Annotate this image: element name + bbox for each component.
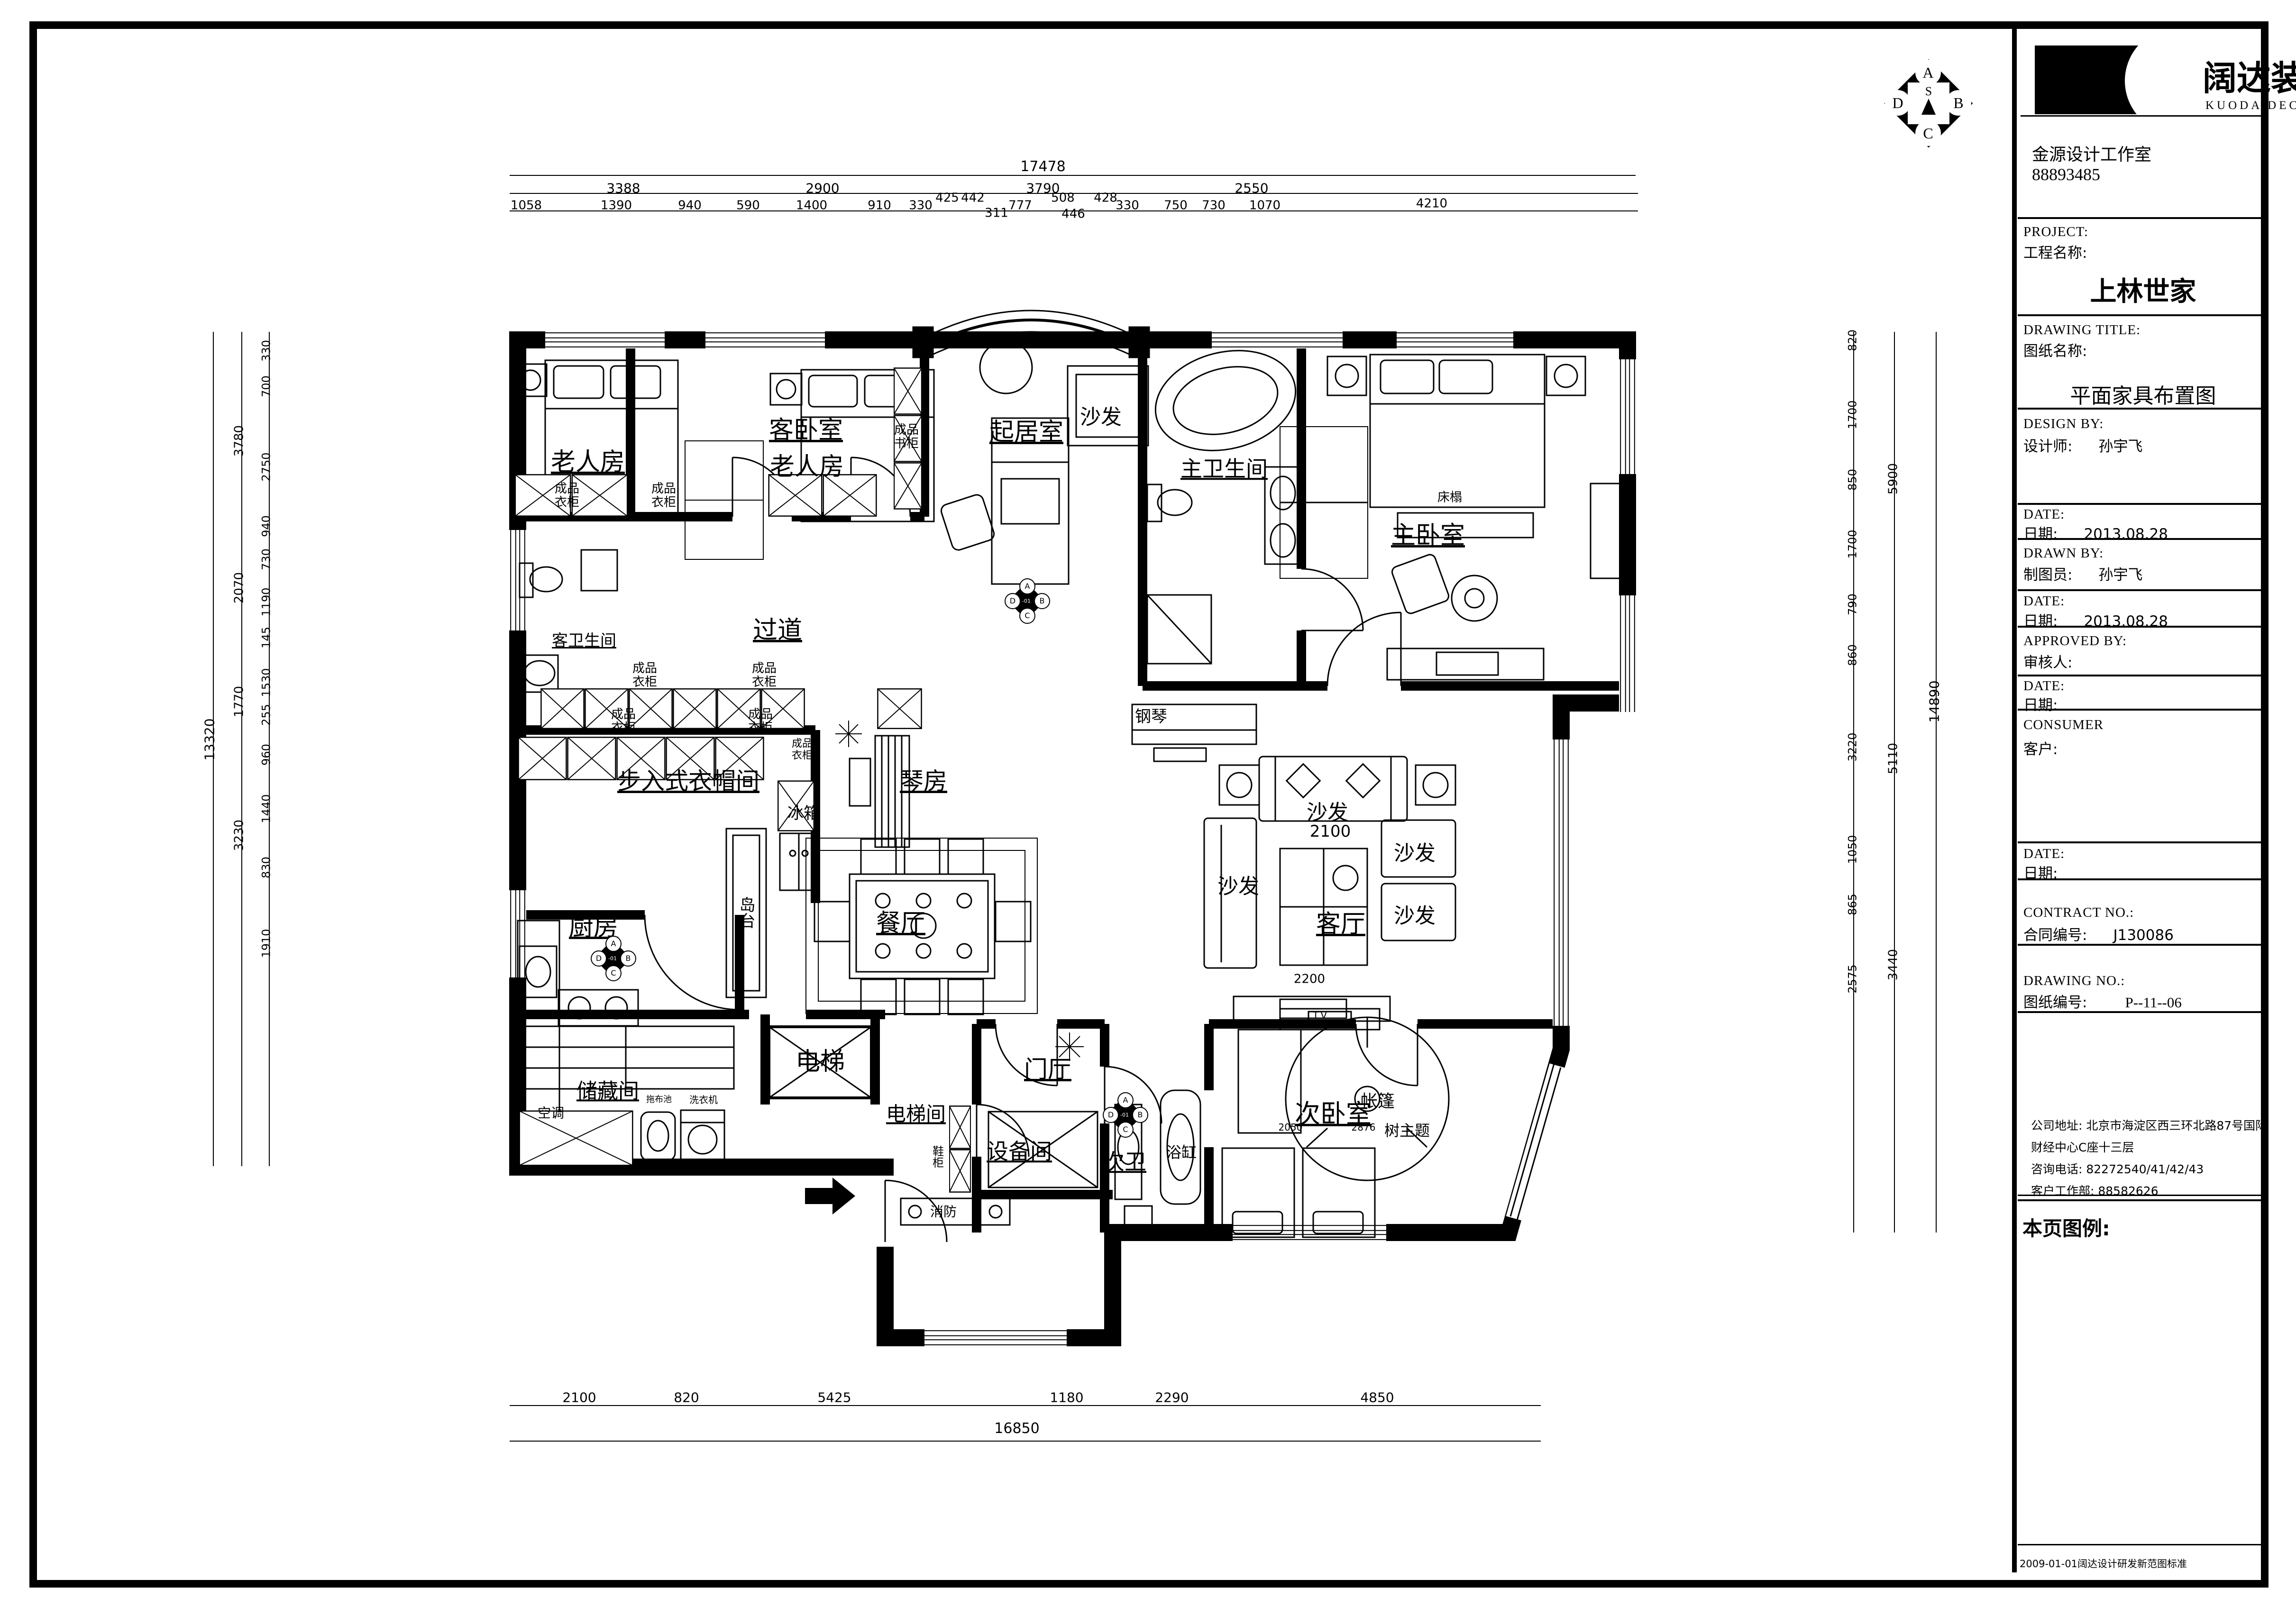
room-equipment: 设备间 <box>987 1140 1052 1164</box>
wardrobe-label-3: 成品 衣柜 <box>632 662 657 689</box>
drawing-title: 平面家具布置图 <box>2018 379 2269 409</box>
room-foyer: 门厅 <box>1024 1056 1071 1083</box>
bathtub-label: 浴缸 <box>1166 1144 1197 1161</box>
dim: 940 <box>260 515 273 537</box>
compass-south-arrow: S <box>1918 84 1939 124</box>
sofa-right-label-1: 沙发 <box>1394 841 1436 865</box>
dim: 2290 <box>1155 1390 1189 1405</box>
sofa-main-label: 沙发 <box>1307 801 1348 824</box>
company-address-1: 公司地址: 北京市海淀区西三环北路87号国际 <box>2031 1116 2267 1133</box>
dim: 700 <box>260 375 273 397</box>
dim: 5900 <box>1886 463 1900 494</box>
bookcase-label: 成品 书柜 <box>894 423 919 451</box>
elevation-marker: ABCD-01 <box>1004 578 1049 624</box>
sofa-study-label: 沙发 <box>1080 405 1122 429</box>
brand-name-en: KUODA DECORRTION <box>2205 99 2296 112</box>
dim: 730 <box>260 548 273 570</box>
dim-right-total: 14890 <box>1927 680 1941 722</box>
section-project: PROJECT: 工程名称: 上林世家 <box>2018 217 2269 316</box>
dim: 820 <box>1847 329 1859 351</box>
room-elevator-hall: 电梯间 <box>886 1103 946 1125</box>
company-phone: 咨询电话: 82272540/41/42/43 <box>2031 1160 2204 1177</box>
company-address-2: 财经中心C座十三层 <box>2031 1138 2134 1155</box>
dim-left-total: 13320 <box>202 718 217 760</box>
dim: 255 <box>260 704 273 726</box>
ac-label: 空调 <box>538 1105 564 1120</box>
studio-name: 金源设计工作室 <box>2032 141 2151 165</box>
elevation-marker-letter: D <box>1005 593 1021 609</box>
dim: 1770 <box>232 686 246 717</box>
dim-tvcab: 2200 <box>1294 972 1325 986</box>
elevation-marker-letter: D <box>591 950 607 967</box>
room-second-bath: 次卫 <box>1103 1150 1146 1175</box>
dim: 860 <box>1847 644 1859 666</box>
studio-phone: 88893485 <box>2032 164 2100 184</box>
dim: 1530 <box>260 668 273 697</box>
dim: 428 <box>1094 191 1117 205</box>
dim: 4210 <box>1416 197 1447 210</box>
dim: 2550 <box>1235 181 1268 195</box>
section-approved-by: APPROVED BY: 审核人: <box>2018 626 2269 676</box>
section-design-by: DESIGN BY: 设计师:孙宇飞 <box>2018 408 2269 505</box>
dim: 330 <box>909 199 933 212</box>
section-date4: DATE: 日期: <box>2018 841 2269 880</box>
dim-bottom-total: 16850 <box>994 1421 1039 1437</box>
tent-label: 帐篷 <box>1361 1092 1395 1111</box>
dim: 3440 <box>1886 949 1900 980</box>
dim: 330 <box>1116 199 1139 212</box>
tv-label: T.V. <box>1313 1010 1329 1021</box>
fire-hydrant-label: 消防 <box>930 1204 957 1219</box>
dim: 425 <box>935 191 959 205</box>
dim: 865 <box>1847 894 1859 915</box>
dim: 960 <box>260 744 273 766</box>
elevation-marker-letter: C <box>605 965 622 981</box>
elevation-marker-letter: A <box>605 936 622 952</box>
section-legend: 本页图例: <box>2018 1199 2269 1546</box>
bed-bench-label: 床榻 <box>1437 491 1462 504</box>
dim: 1050 <box>1847 835 1859 864</box>
section-drawing-title: DRAWING TITLE: 图纸名称: 平面家具布置图 <box>2018 314 2269 410</box>
project-name: 上林世家 <box>2018 270 2269 309</box>
dim: 1390 <box>601 199 632 212</box>
dim: 830 <box>260 857 273 878</box>
compass-letter-b: B <box>1946 90 1971 116</box>
dim-top-total: 17478 <box>1020 159 1065 175</box>
dim: 2750 <box>260 452 273 481</box>
elevation-marker-code: -01 <box>608 956 617 962</box>
section-company-info: 公司地址: 北京市海淀区西三环北路87号国际 财经中心C座十三层 咨询电话: 8… <box>2018 1011 2269 1201</box>
dim: 508 <box>1051 191 1075 205</box>
section-drawn-by: DRAWN BY: 制图员:孙宇飞 <box>2018 538 2269 591</box>
elevation-marker: ABCD-01 <box>590 936 635 981</box>
dim: 1910 <box>260 929 273 958</box>
dim: 1440 <box>260 794 273 823</box>
dim: 910 <box>868 199 891 212</box>
title-block: 阔达装饰 KUODA DECORRTION 金源设计工作室 88893485 P… <box>2018 29 2269 1572</box>
contract-no: J130086 <box>2113 927 2173 944</box>
dim: 2900 <box>805 181 839 195</box>
section-drawing-no: DRAWING NO.: 图纸编号:P--11--06 <box>2018 944 2269 1013</box>
dim: 940 <box>678 199 702 212</box>
mop-sink-label: 拖布池 <box>646 1095 672 1105</box>
dim: 777 <box>1008 199 1032 212</box>
compass-icon: A B C D S <box>1881 56 1976 151</box>
compass-letter-c: C <box>1915 120 1941 146</box>
dim: 311 <box>985 206 1008 220</box>
island-label: 岛台 <box>737 896 755 929</box>
dim: 145 <box>260 627 273 648</box>
section-date3: DATE: 日期: <box>2018 675 2269 711</box>
dim: 2070 <box>232 572 246 603</box>
section-date1: DATE: 日期:2013.08.28 <box>2018 503 2269 540</box>
dim: 442 <box>961 191 985 205</box>
elevation-marker-code: -01 <box>1120 1112 1129 1118</box>
piano-label: 钢琴 <box>1135 708 1167 726</box>
elevation-marker-letter: B <box>1034 593 1050 609</box>
dim: 5110 <box>1886 743 1900 774</box>
dim: 3220 <box>1847 732 1859 761</box>
dim-sofa: 2100 <box>1310 822 1351 840</box>
wardrobe-label-7: 成品 衣柜 <box>792 738 813 761</box>
section-date2: DATE: 日期:2013.08.28 <box>2018 589 2269 628</box>
elevation-marker-code: -01 <box>1022 598 1031 604</box>
elevation-marker-letter: C <box>1117 1122 1134 1138</box>
elevation-marker-letter: A <box>1019 578 1035 594</box>
room-living: 客厅 <box>1316 911 1365 938</box>
room-elder-1: 老人房 <box>551 448 625 476</box>
compass-letter-a: A <box>1915 60 1941 85</box>
dim: 1700 <box>1847 530 1859 558</box>
wardrobe-label-1: 成品 衣柜 <box>555 482 579 510</box>
wardrobe-label-4: 成品 衣柜 <box>752 662 777 689</box>
sofa-left-label: 沙发 <box>1217 875 1259 898</box>
plan-labels-layer: 老人房客卧室老人房成品 书柜起居室沙发主卫生间主卧室床榻成品 衣柜成品 衣柜客卫… <box>0 0 2296 1607</box>
dim: 2575 <box>1847 964 1859 993</box>
wardrobe-label-2: 成品 衣柜 <box>651 482 676 510</box>
dim: 446 <box>1061 207 1085 221</box>
dim: 3780 <box>232 425 246 457</box>
room-guest-bath: 客卫生间 <box>552 632 616 650</box>
footer-note: 2009-01-01阔达设计研发新范图标准 <box>2020 1556 2187 1570</box>
dim: 3230 <box>232 820 246 851</box>
room-study: 起居室 <box>989 419 1063 446</box>
drafter-name: 孙宇飞 <box>2098 566 2142 584</box>
elevator-label: 电梯 <box>796 1048 845 1076</box>
elevation-marker-letter: B <box>620 950 636 967</box>
room-piano: 琴房 <box>900 768 947 794</box>
elevation-marker-letter: C <box>1019 608 1035 624</box>
wardrobe-label-5: 成品 衣柜 <box>611 708 636 735</box>
elevation-marker: ABCD-01 <box>1102 1092 1147 1138</box>
brand-name-cn: 阔达装饰 <box>2203 50 2296 100</box>
elevation-marker-letter: B <box>1132 1107 1148 1123</box>
room-guest-line2: 老人房 <box>770 453 844 481</box>
dim: 850 <box>1847 469 1859 491</box>
designer-name: 孙宇飞 <box>2098 438 2142 455</box>
dim: 790 <box>1847 593 1859 615</box>
room-master-bed: 主卧室 <box>1391 522 1465 549</box>
elevation-marker-letter: A <box>1117 1092 1134 1108</box>
washer-label: 洗衣机 <box>689 1095 718 1105</box>
dim: 1058 <box>511 199 542 212</box>
room-corridor: 过道 <box>753 617 802 644</box>
dim: 590 <box>736 199 760 212</box>
drawing-no: P--11--06 <box>2125 994 2181 1011</box>
dim-bed2-2: 2876 <box>1352 1122 1376 1132</box>
room-master-bath: 主卫生间 <box>1180 457 1268 482</box>
section-contract: CONTRACT NO.: 合同编号:J130086 <box>2018 878 2269 946</box>
company-logo <box>2035 46 2191 114</box>
shoe-cabinet-label: 鞋柜 <box>931 1145 943 1168</box>
room-cloak: 步入式衣帽间 <box>617 768 759 794</box>
company-customer-dept: 客户工作部: 88582626 <box>2031 1182 2159 1199</box>
dim: 820 <box>674 1390 699 1405</box>
dim: 750 <box>1164 199 1188 212</box>
dim: 1400 <box>796 199 827 212</box>
room-storage: 储藏间 <box>576 1079 639 1103</box>
dim-bed2-1: 2050 <box>1279 1122 1303 1132</box>
section-consumer: CONSUMER 客户: <box>2018 709 2269 843</box>
drawing-sheet: 老人房客卧室老人房成品 书柜起居室沙发主卫生间主卧室床榻成品 衣柜成品 衣柜客卫… <box>0 0 2296 1607</box>
compass-letter-d: D <box>1885 90 1911 116</box>
fridge-label: 冰箱 <box>787 804 820 822</box>
dim: 1700 <box>1847 400 1859 429</box>
room-dining: 餐厅 <box>876 910 925 937</box>
dim: 3388 <box>606 181 640 195</box>
dim: 1180 <box>1050 1390 1083 1405</box>
dim: 2100 <box>562 1390 596 1405</box>
dim: 5425 <box>817 1390 851 1405</box>
dim: 330 <box>260 340 273 362</box>
sofa-right-label-2: 沙发 <box>1394 904 1436 927</box>
wardrobe-label-6: 成品 衣柜 <box>748 708 773 735</box>
dim: 1070 <box>1249 199 1281 212</box>
legend-label: 本页图例: <box>2022 1213 2110 1242</box>
elevation-marker-letter: D <box>1103 1107 1119 1123</box>
dim: 730 <box>1202 199 1226 212</box>
tree-theme-label: 树主题 <box>1384 1123 1430 1140</box>
room-guest-line1: 客卧室 <box>769 417 843 444</box>
dim: 1190 <box>260 587 273 616</box>
dim: 4850 <box>1360 1390 1394 1405</box>
